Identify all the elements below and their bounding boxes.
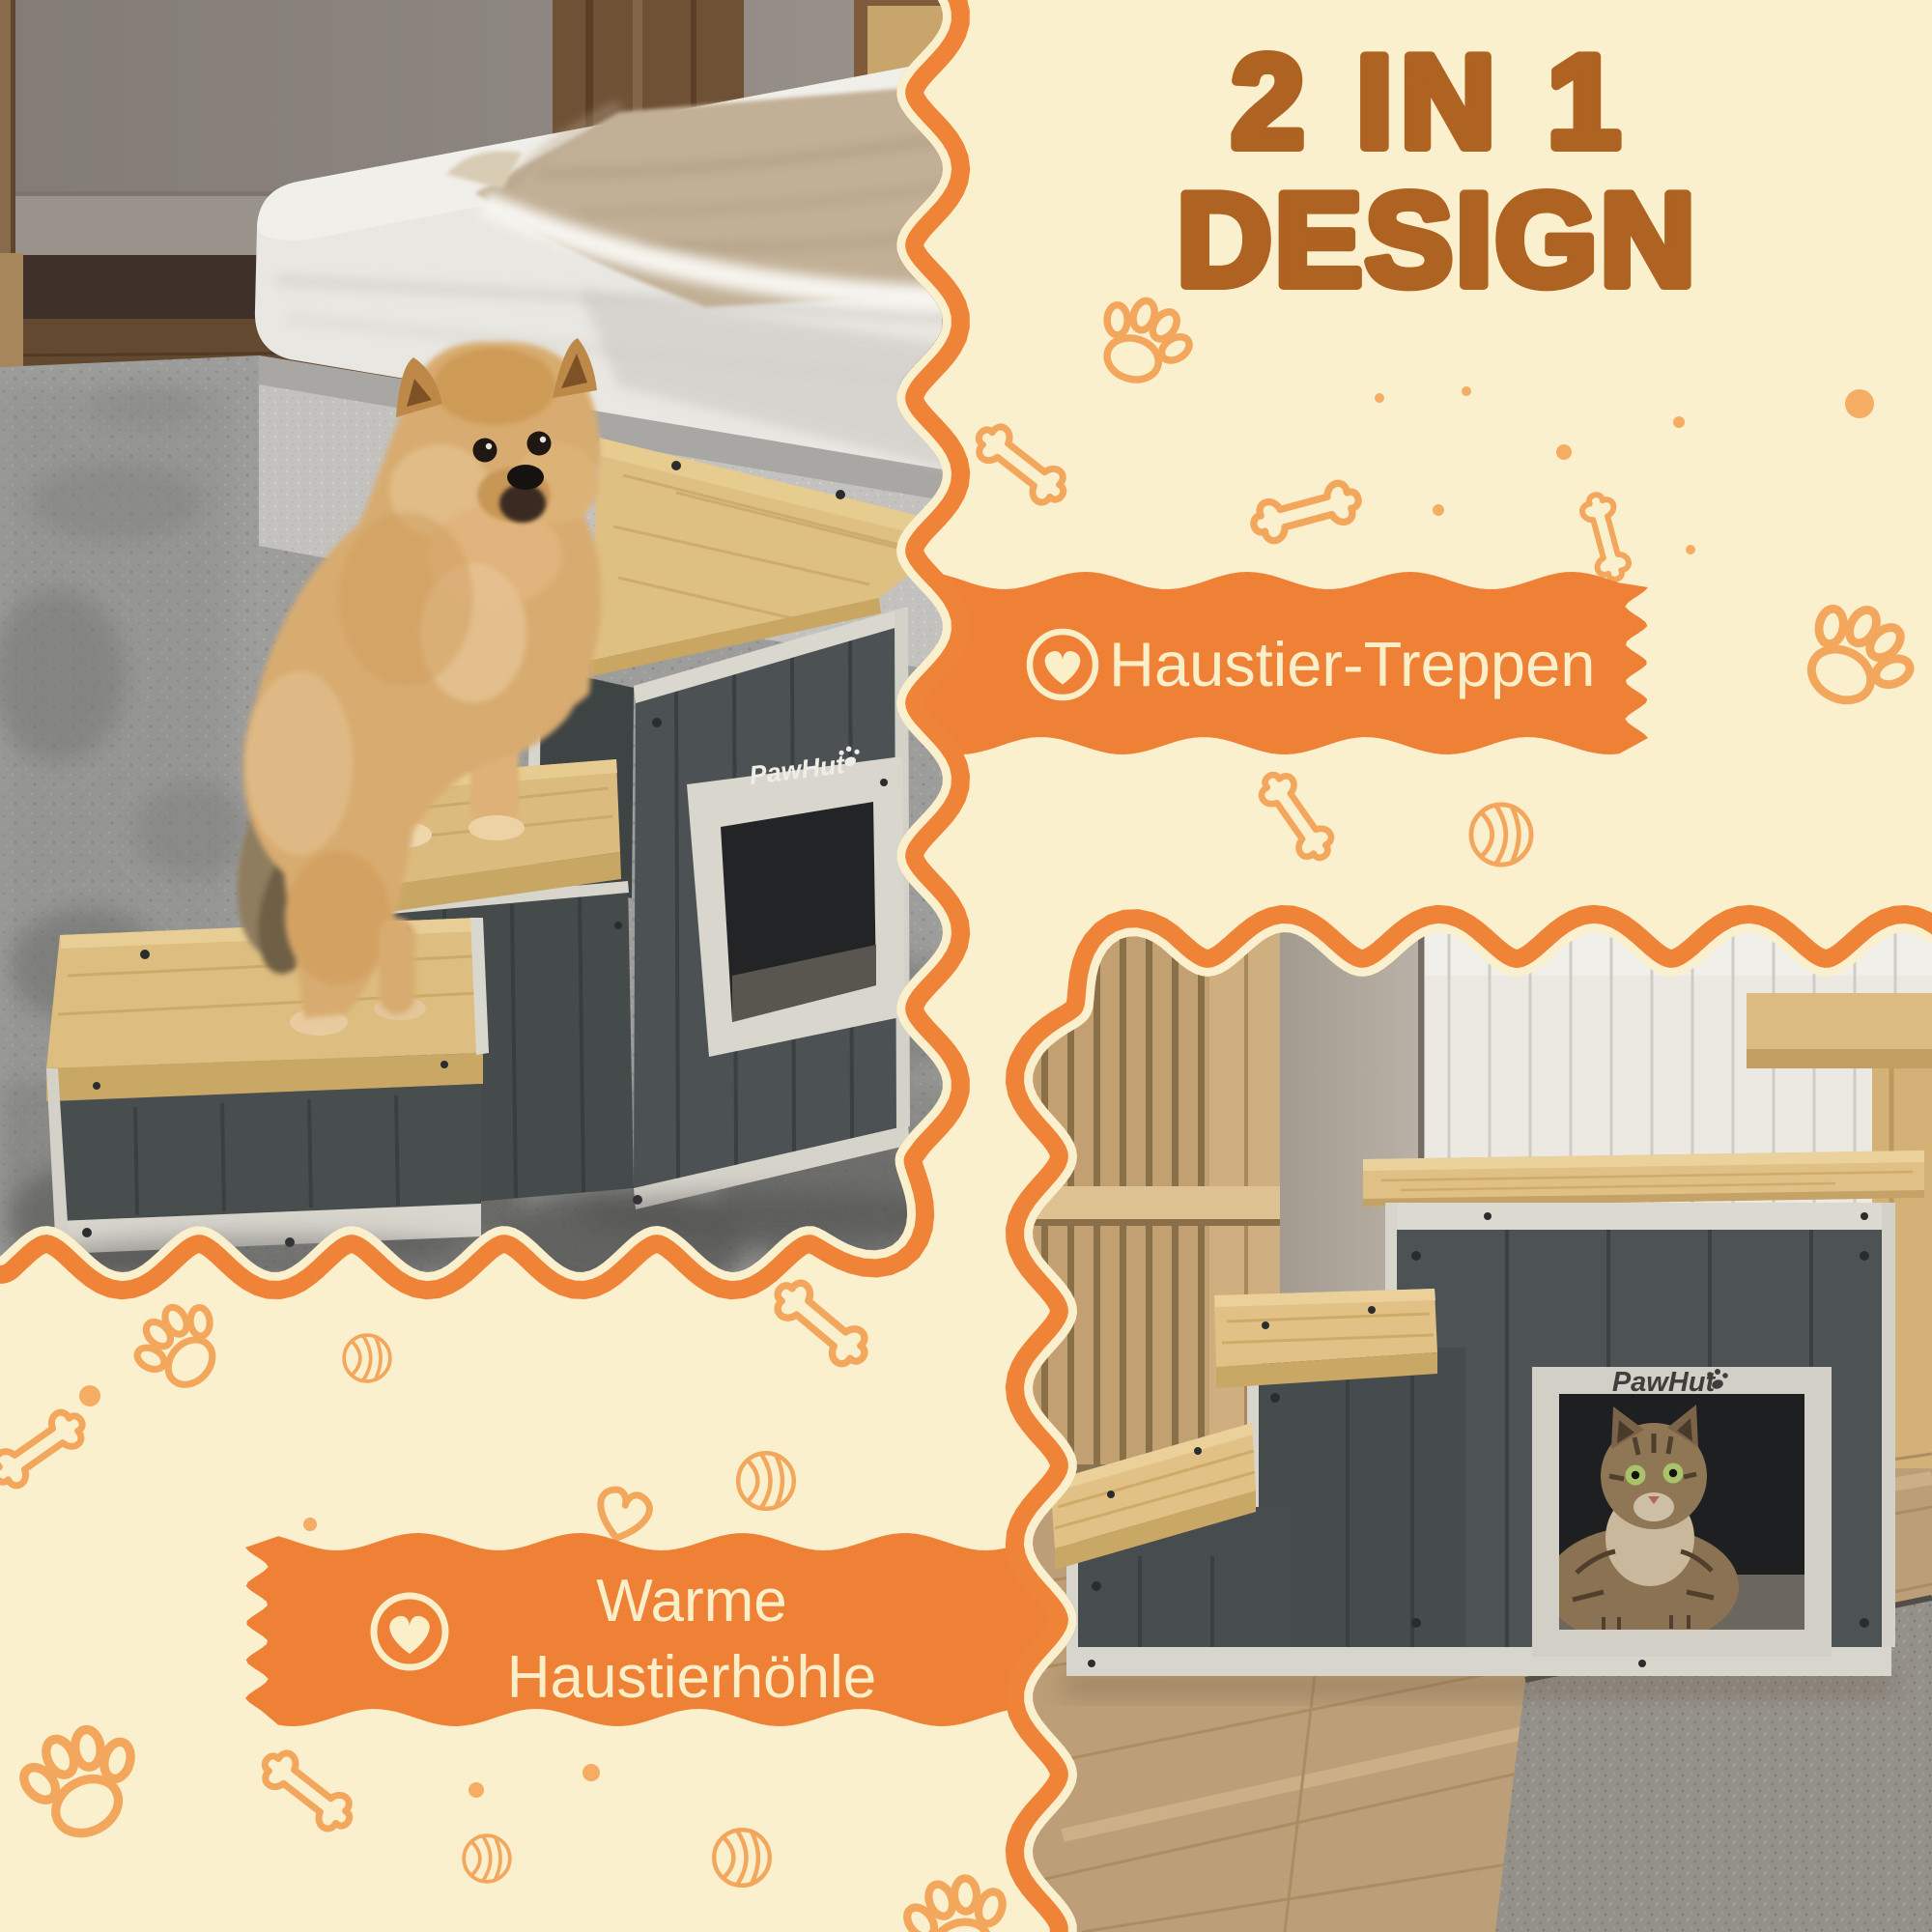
svg-text:Haustier-Treppen: Haustier-Treppen [1109, 629, 1595, 699]
svg-text:PawHut: PawHut [1612, 1367, 1717, 1398]
svg-text:Haustierhöhle: Haustierhöhle [507, 1644, 877, 1711]
svg-text:DESIGN: DESIGN [1177, 166, 1697, 313]
svg-text:2 IN 1: 2 IN 1 [1232, 28, 1629, 175]
svg-text:Warme: Warme [596, 1568, 786, 1634]
